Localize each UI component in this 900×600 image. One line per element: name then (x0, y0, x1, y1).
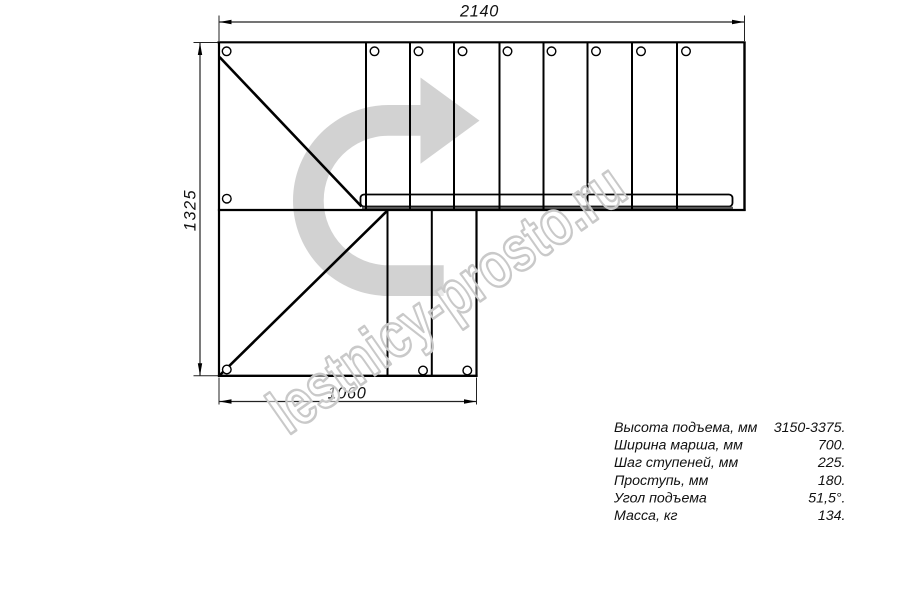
svg-text:Ширина марша, мм: Ширина марша, мм (614, 438, 743, 454)
svg-text:Высота подъема, мм: Высота подъема, мм (614, 420, 758, 436)
svg-text:Масса, кг: Масса, кг (614, 508, 678, 524)
svg-text:Проступь, мм: Проступь, мм (614, 473, 709, 489)
svg-text:Угол подъема: Угол подъема (613, 490, 707, 506)
svg-text:51,5°.: 51,5°. (808, 490, 845, 506)
svg-text:225.: 225. (817, 455, 846, 471)
svg-text:3150-3375.: 3150-3375. (774, 420, 846, 436)
svg-text:180.: 180. (818, 473, 846, 489)
svg-text:134.: 134. (818, 508, 846, 524)
svg-text:1325: 1325 (182, 189, 200, 231)
svg-text:Шаг ступеней, мм: Шаг ступеней, мм (614, 455, 738, 471)
svg-text:700.: 700. (818, 438, 846, 454)
svg-text:2140: 2140 (459, 3, 499, 21)
